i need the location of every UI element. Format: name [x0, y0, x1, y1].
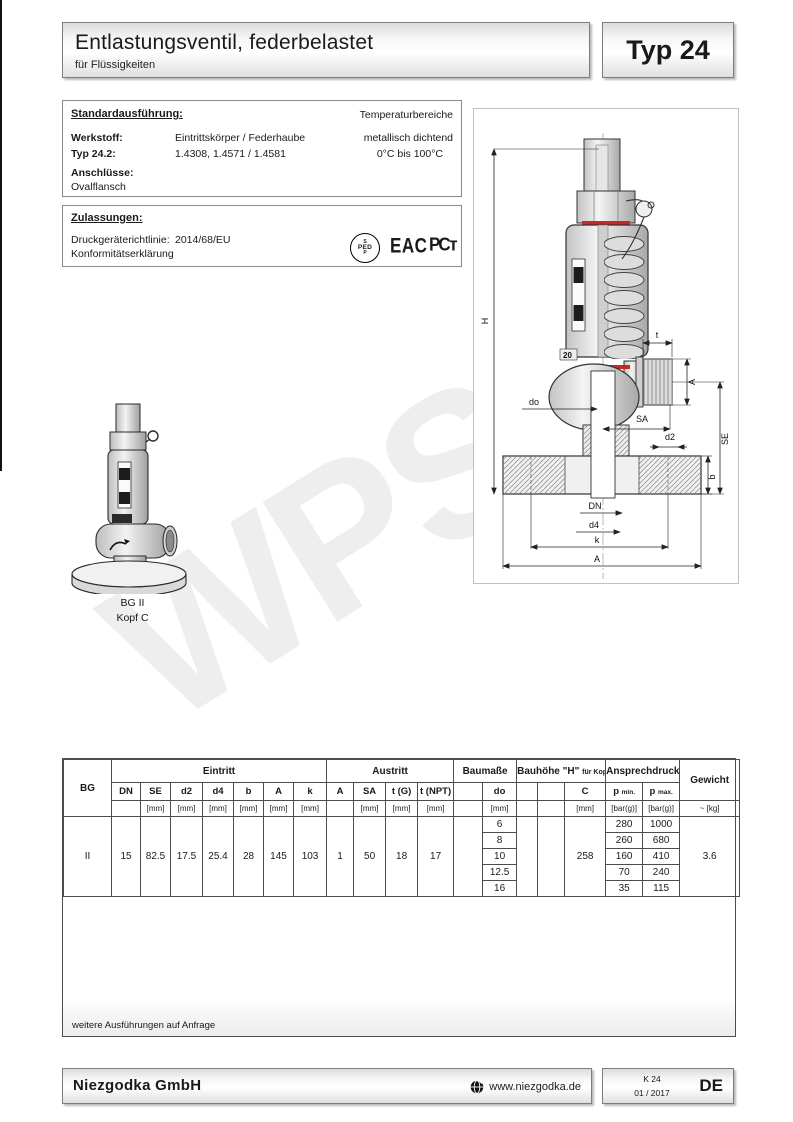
col-group-eintritt: Eintritt: [112, 760, 327, 783]
col-sa: SA: [354, 783, 386, 801]
directive-value: 2014/68/EU: [175, 234, 230, 246]
cell-pmin-2: 160: [606, 849, 643, 865]
cell-pmax-0: 1000: [643, 817, 680, 833]
dim-label-do: do: [529, 397, 539, 407]
temp-range: 0°C bis 100°C: [377, 148, 443, 160]
col-group-baumasse: Baumaße: [454, 760, 517, 783]
page-title: Entlastungsventil, federbelastet: [75, 31, 577, 55]
cell-do-0: 6: [483, 817, 517, 833]
unit-do: [mm]: [483, 801, 517, 817]
doc-code-box: K 24 01 / 2017 DE: [602, 1068, 734, 1104]
unit-d2: [mm]: [171, 801, 203, 817]
dim-label-d2: d2: [665, 432, 675, 442]
anschluesse-value: Ovalflansch: [71, 181, 126, 193]
col-p-max: p max.: [643, 783, 680, 801]
caption-kopf: Kopf C: [60, 611, 205, 626]
unit-sa: [mm]: [354, 801, 386, 817]
cell-sa: 50: [354, 817, 386, 897]
cell-pmax-2: 410: [643, 849, 680, 865]
cell-a: 145: [264, 817, 294, 897]
cell-pmax-1: 680: [643, 833, 680, 849]
small-drawing-caption: BG II Kopf C: [60, 596, 205, 626]
cell-d2: 17.5: [171, 817, 203, 897]
cell-dn: 15: [112, 817, 141, 897]
cell-bm-blank: [454, 817, 483, 897]
type-box: Typ 24: [602, 22, 734, 78]
unit-d4: [mm]: [203, 801, 234, 817]
unit-bh2: [538, 801, 565, 817]
datasheet-page: WPS Entlastungsventil, federbelastet für…: [0, 0, 793, 1122]
cell-gewicht: 3.6: [680, 817, 740, 897]
eac-certification-icon: EAC: [390, 234, 427, 259]
typ-materials: 1.4308, 1.4571 / 1.4581: [175, 148, 286, 160]
unit-se: [mm]: [141, 801, 171, 817]
werkstoff-label: Werkstoff:: [71, 132, 123, 144]
col-c: C: [565, 783, 606, 801]
cell-pmin-3: 70: [606, 865, 643, 881]
cell-pmin-4: 35: [606, 881, 643, 897]
unit-bh1: [517, 801, 538, 817]
col-baumasse-blank: [454, 783, 483, 801]
col-d4: d4: [203, 783, 234, 801]
anschluesse-label: Anschlüsse:: [71, 167, 133, 179]
dim-label-se: SE: [720, 433, 730, 445]
dim-label-d4: d4: [589, 520, 599, 530]
col-group-bauhoehe: Bauhöhe "H" für Kopf: [517, 760, 606, 783]
col-do: do: [483, 783, 517, 801]
werkstoff-value: Eintrittskörper / Federhaube: [175, 132, 305, 144]
pct-gost-certification-icon: РСт: [429, 234, 456, 256]
cell-se: 82.5: [141, 817, 171, 897]
dimension-table-box: BG Eintritt Austritt Baumaße Bauhöhe "H"…: [62, 758, 736, 1037]
col-a-austritt: A: [327, 783, 354, 801]
unit-c: [mm]: [565, 801, 606, 817]
scan-edge-line: [0, 0, 2, 471]
unit-a2: [327, 801, 354, 817]
type-label: Typ 24: [626, 35, 710, 66]
unit-dn: [112, 801, 141, 817]
col-dn: DN: [112, 783, 141, 801]
col-a: A: [264, 783, 294, 801]
cell-pmin-1: 260: [606, 833, 643, 849]
cell-bg: II: [64, 817, 112, 897]
dim-label-k: k: [595, 535, 600, 545]
unit-tg: [mm]: [386, 801, 418, 817]
dim-label-dn: DN: [589, 501, 602, 511]
cell-pmax-3: 240: [643, 865, 680, 881]
cell-a2: 1: [327, 817, 354, 897]
typ-label: Typ 24.2:: [71, 148, 116, 160]
title-box: Entlastungsventil, federbelastet für Flü…: [62, 22, 590, 78]
directive-label: Druckgeräterichtlinie:: [71, 234, 170, 246]
unit-bm-blank: [454, 801, 483, 817]
dim-label-sa: SA: [636, 414, 648, 424]
col-b: b: [234, 783, 264, 801]
unit-b: [mm]: [234, 801, 264, 817]
language-label: DE: [699, 1076, 723, 1096]
col-t-npt: t (NPT): [418, 783, 454, 801]
col-t-g: t (G): [386, 783, 418, 801]
unit-a: [mm]: [264, 801, 294, 817]
conformity-text: Konformitätserklärung: [71, 248, 174, 260]
table-note: weitere Ausführungen auf Anfrage: [72, 1020, 215, 1031]
cell-k: 103: [294, 817, 327, 897]
footer-bar: Niezgodka GmbH www.niezgodka.de: [62, 1068, 592, 1104]
col-k: k: [294, 783, 327, 801]
unit-tnpt: [mm]: [418, 801, 454, 817]
cell-tg: 18: [386, 817, 418, 897]
cell-pmax-4: 115: [643, 881, 680, 897]
dimension-table: BG Eintritt Austritt Baumaße Bauhöhe "H"…: [63, 759, 740, 897]
standard-box: Standardausführung: Temperaturbereiche W…: [62, 100, 462, 197]
valve-section-drawing-frame: 20 H: [473, 108, 739, 584]
col-p-min: p min.: [606, 783, 643, 801]
globe-icon: [470, 1080, 484, 1094]
col-group-austritt: Austritt: [327, 760, 454, 783]
col-se: SE: [141, 783, 171, 801]
col-group-ansprechdruck: Ansprechdruck: [606, 760, 680, 783]
cell-do-1: 8: [483, 833, 517, 849]
unit-gewicht: ~ [kg]: [680, 801, 740, 817]
cell-do-4: 16: [483, 881, 517, 897]
dim-label-a-bottom: A: [594, 554, 600, 564]
approvals-heading: Zulassungen:: [71, 212, 143, 224]
cell-b: 28: [234, 817, 264, 897]
website-link[interactable]: www.niezgodka.de: [489, 1081, 581, 1093]
cell-c: 258: [565, 817, 606, 897]
col-bh1-blank: [517, 783, 538, 801]
drawing-tag-20: 20: [563, 351, 572, 360]
temperature-heading: Temperaturbereiche: [360, 109, 453, 121]
doc-date: 01 / 2017: [617, 1087, 687, 1101]
ped-bottom-letter: P: [363, 251, 366, 256]
dim-label-b: b: [707, 474, 717, 479]
standard-heading: Standardausführung:: [71, 108, 183, 120]
caption-bg: BG II: [60, 596, 205, 611]
unit-pmin: [bar(g)]: [606, 801, 643, 817]
unit-k: [mm]: [294, 801, 327, 817]
page-subtitle: für Flüssigkeiten: [75, 59, 577, 71]
ped-certification-icon: S PED P: [350, 233, 380, 263]
cell-do-2: 10: [483, 849, 517, 865]
col-group-gewicht: Gewicht: [680, 760, 740, 801]
cell-bh2-blank: [538, 817, 565, 897]
approvals-box: Zulassungen: Druckgeräterichtlinie: 2014…: [62, 205, 462, 267]
col-bh2-blank: [538, 783, 565, 801]
company-name: Niezgodka GmbH: [73, 1077, 201, 1094]
dim-label-t: t: [656, 330, 659, 340]
cell-tnpt: 17: [418, 817, 454, 897]
cell-do-3: 12.5: [483, 865, 517, 881]
valve-photo-drawing: [52, 402, 227, 594]
cell-d4: 25.4: [203, 817, 234, 897]
valve-section-drawing: 20 H: [474, 109, 738, 583]
sealing-value: metallisch dichtend: [364, 132, 453, 144]
unit-pmax: [bar(g)]: [643, 801, 680, 817]
valve-3d-drawing: [52, 402, 227, 594]
col-group-bg: BG: [64, 760, 112, 817]
dim-label-h: H: [480, 318, 490, 325]
col-d2: d2: [171, 783, 203, 801]
doc-code: K 24: [617, 1073, 687, 1087]
cell-pmin-0: 280: [606, 817, 643, 833]
cell-bh1-blank: [517, 817, 538, 897]
